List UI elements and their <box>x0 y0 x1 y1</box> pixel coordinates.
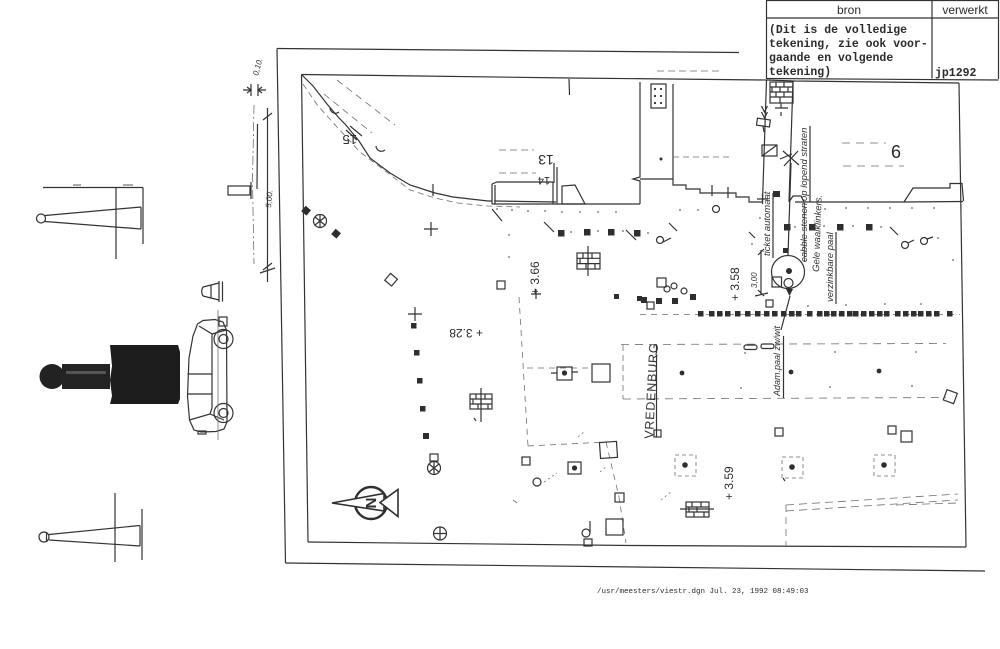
svg-text:op lopend straten: op lopend straten <box>799 128 810 201</box>
svg-text:ticket automaat: ticket automaat <box>762 191 773 256</box>
svg-text:14: 14 <box>538 174 550 186</box>
svg-text:jp1292: jp1292 <box>935 67 977 80</box>
svg-text:6: 6 <box>891 142 901 162</box>
svg-text:+ 3.58: + 3.58 <box>728 267 742 301</box>
svg-text:bron: bron <box>837 3 861 17</box>
svg-text:tekening): tekening) <box>769 66 831 79</box>
svg-text:Adam.paal zw/wit: Adam.paal zw/wit <box>772 325 782 397</box>
svg-text:verzinkbare paal: verzinkbare paal <box>825 231 836 302</box>
svg-text:tekening, zie ook voor-: tekening, zie ook voor- <box>769 38 928 51</box>
svg-text:15: 15 <box>343 132 357 147</box>
svg-text:cabble stenen: cabble stenen <box>799 203 810 262</box>
svg-text:13: 13 <box>538 152 554 168</box>
svg-text:(Dit is de volledige: (Dit is de volledige <box>769 24 907 37</box>
svg-text:+ 3.28: + 3.28 <box>449 326 483 340</box>
svg-text:N: N <box>362 498 379 509</box>
svg-text:+ 3.59: + 3.59 <box>722 466 736 500</box>
svg-text:+ 3.66: + 3.66 <box>528 261 542 295</box>
svg-text:5,00.: 5,00. <box>264 190 275 209</box>
svg-text:gaande en volgende: gaande en volgende <box>769 52 893 65</box>
svg-text:verwerkt: verwerkt <box>942 3 988 17</box>
svg-text:3,00: 3,00 <box>750 272 759 288</box>
svg-text:/usr/meesters/viestr.dgn Jul.: /usr/meesters/viestr.dgn Jul. 23, 1992 0… <box>597 588 809 596</box>
